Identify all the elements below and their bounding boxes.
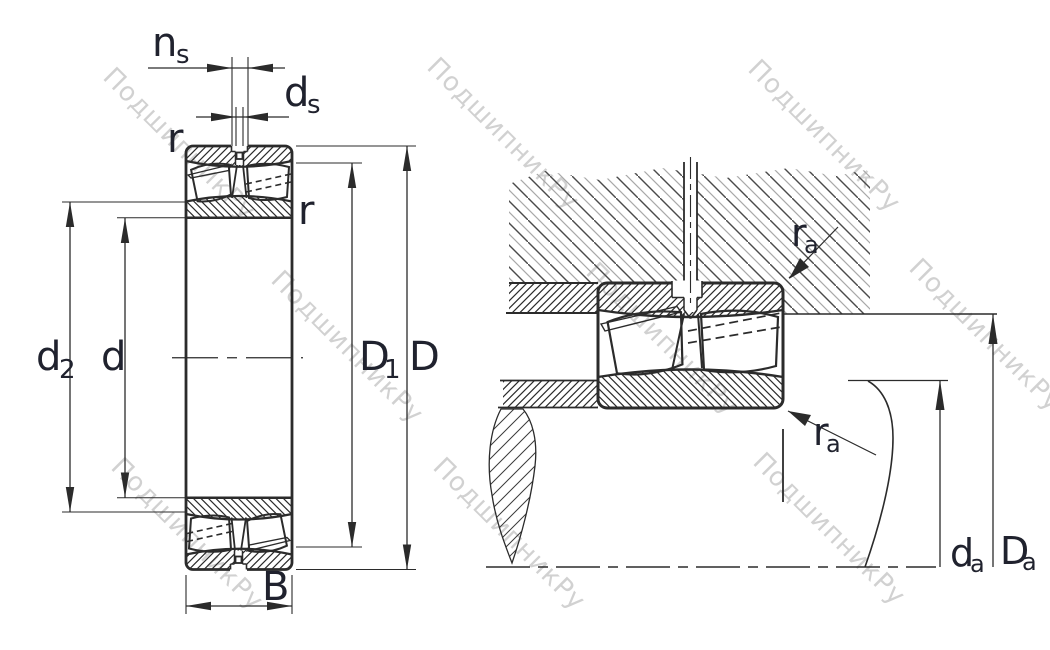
dim-label-ns: n [152,20,177,66]
bearing-lower-section [186,498,292,574]
dim-label-d: d [101,334,126,380]
mounted-roller-right [701,311,778,373]
dim-label-D: D [409,334,440,380]
fillet-label-r-side: r [298,188,315,234]
cage-wedge [188,165,231,179]
dim-label-ra-bottom-sub: a [826,430,841,458]
dim-label-B: B [262,564,289,610]
dim-label-d2-sub: 2 [59,355,76,385]
roller-right [247,164,289,200]
technical-drawing: n s d s r r d 2 [0,0,1050,650]
dim-label-Da-sub: a [1022,548,1037,576]
shaft-profile-curve [865,381,893,567]
shaft-shoulder-hatch [503,381,598,408]
dimension-ra-bottom: r a [788,410,876,458]
dimension-da: d a [936,380,985,578]
dimension-Da: D a [989,314,1037,576]
shaft-breakout-section [489,409,536,563]
dim-label-ds: d [284,70,309,116]
mounted-inner-ring-hatch [598,370,783,409]
dim-label-da-sub: a [970,550,985,578]
left-view-bearing-section: n s d s r r d 2 [36,20,440,614]
dimension-ds: d s [196,70,321,146]
inner-ring-hatch [186,196,292,218]
right-view-mounting-section: r a r a d a D a [486,157,1037,578]
dim-label-ds-sub: s [307,90,321,120]
guide-rib [232,165,247,198]
dim-label-ra-top-sub: a [804,231,819,259]
bearing-upper-section [186,142,292,218]
mounted-roller-left-tilted [607,309,687,378]
roller-hidden-lines [246,174,291,192]
mounted-guide-rib [672,314,702,370]
dim-label-ns-sub: s [176,40,190,70]
lube-slot [231,142,248,152]
dim-label-d2: d [36,334,61,380]
housing-seat-hatch [509,283,598,313]
dim-label-D1-sub: 1 [384,355,401,385]
bearing-diagram-page: ПодшипникРу ПодшипникРу ПодшипникРу Подш… [0,0,1050,650]
lube-groove [672,281,702,298]
fillet-label-r-top: r [167,116,184,162]
